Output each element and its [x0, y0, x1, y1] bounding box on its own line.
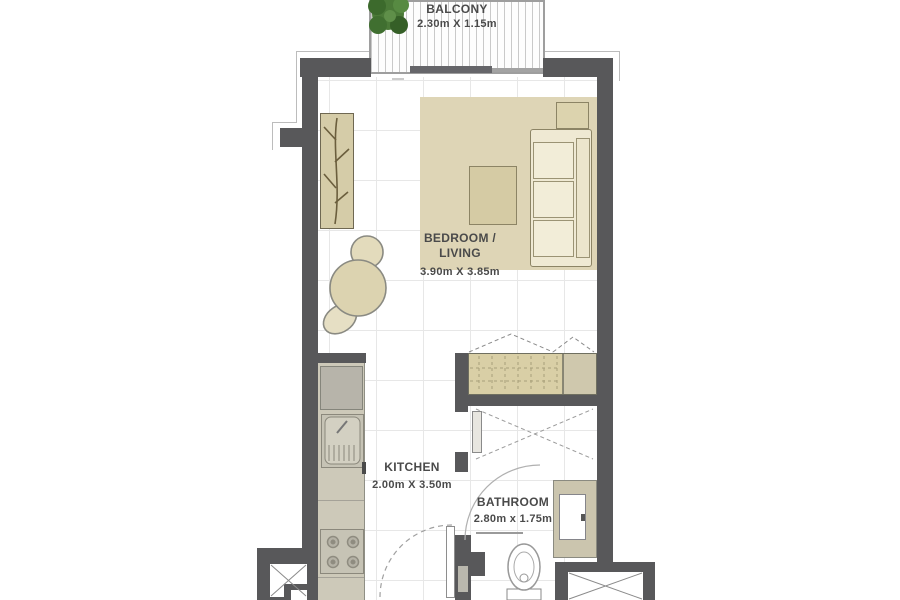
kitchen-dimensions: 2.00m X 3.50m	[357, 479, 467, 491]
wall-bath-nub	[471, 552, 485, 576]
balcony-dimensions: 2.30m X 1.15m	[369, 18, 545, 30]
bathroom-label: BATHROOM	[462, 495, 564, 509]
service-shaft-right	[568, 572, 643, 600]
fridge	[320, 366, 363, 410]
wardrobe	[320, 113, 354, 229]
service-shaft-left-notch	[291, 590, 307, 600]
counter-divider	[318, 577, 364, 578]
exterior-outline	[272, 122, 273, 150]
balcony-label: BALCONY	[369, 2, 545, 16]
built-in-closet-right-section	[563, 354, 596, 394]
interior-door-leaf	[472, 411, 482, 453]
sofa-cushion	[533, 220, 574, 257]
wall-right	[597, 58, 613, 570]
bedroom-living-label-line2: LIVING	[398, 246, 522, 260]
sofa-cushion	[533, 181, 574, 218]
entrance-door-leaf	[446, 526, 455, 598]
counter-divider	[318, 500, 364, 501]
bedroom-living-dimensions: 3.90m X 3.85m	[398, 266, 522, 278]
side-table	[556, 102, 589, 129]
bedroom-living-label-line1: BEDROOM /	[398, 231, 522, 245]
kitchen-label: KITCHEN	[357, 460, 467, 474]
wall-closet-bottom	[455, 395, 613, 406]
wall-left-step	[280, 128, 304, 147]
shower-handle	[581, 514, 585, 521]
floor-plan: BALCONY 2.30m X 1.15m BEDROOM / LIVING 3…	[0, 0, 900, 600]
interior-door-frame	[458, 566, 468, 592]
bathroom-dimensions: 2.80m x 1.75m	[462, 513, 564, 525]
sofa-back	[576, 138, 590, 258]
exterior-outline	[296, 51, 297, 123]
sofa-cushion	[533, 142, 574, 179]
exterior-outline	[272, 122, 296, 123]
wall-kitchen-divider	[318, 353, 366, 363]
wall-left	[302, 58, 318, 600]
sliding-door-track	[492, 68, 543, 72]
sliding-door	[410, 66, 492, 73]
exterior-outline	[619, 51, 620, 81]
bathroom-dims-underline	[476, 532, 523, 534]
coffee-table	[469, 166, 517, 225]
stove	[320, 529, 364, 574]
